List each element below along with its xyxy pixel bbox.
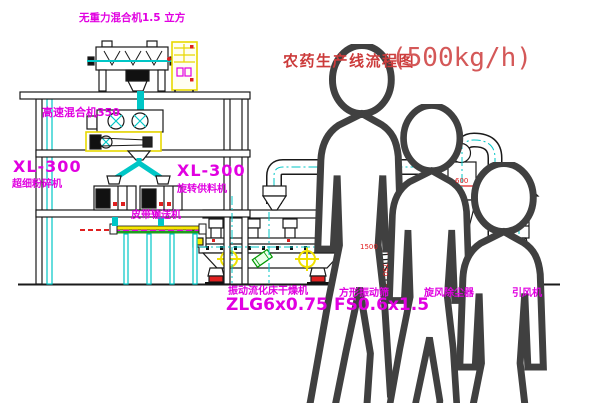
label-pulverizer-left-model: XL-300 xyxy=(13,159,82,175)
pulverizer-left-drop-pipe xyxy=(112,217,118,226)
label-pulverizer-right-model: XL-300 xyxy=(177,163,246,179)
control-cabinet-top xyxy=(172,42,197,92)
dimension-screen-height: 750 xyxy=(381,263,388,276)
person-figure-1 xyxy=(298,46,402,403)
diagram-canvas: 农药生产线流程图 (500kg/h) 无重力混合机1.5 立方 高速混合机350… xyxy=(0,0,600,403)
label-gravity-free-mixer: 无重力混合机1.5 立方 xyxy=(79,13,185,24)
pulverizer-right xyxy=(140,176,182,210)
label-belt-conveyor: 皮带输送机 xyxy=(131,211,181,221)
label-dryer-model: ZLG6x0.75 xyxy=(226,297,328,314)
label-high-speed-mixer: 高速混合机350 xyxy=(42,107,120,118)
label-screen-model: FS0.6x1.5 xyxy=(334,297,429,314)
label-cyclone: 旋风除尘器 xyxy=(424,289,474,299)
dimension-cyclone-diameter: 600 xyxy=(455,178,468,185)
label-induced-draft-fan: 引风机 xyxy=(512,289,542,299)
diagram-title-capacity: (500kg/h) xyxy=(391,45,532,71)
label-pulverizer-right-name: 旋转供料机 xyxy=(177,185,227,195)
belt-conveyor xyxy=(80,224,206,284)
dimension-screen-length: 1500 xyxy=(360,244,378,251)
pulverizer-left xyxy=(94,176,136,210)
gravity-free-mixer xyxy=(87,41,177,91)
conveyor-legs xyxy=(124,234,197,284)
label-pulverizer-left-name: 超细粉碎机 xyxy=(12,180,62,190)
people xyxy=(298,46,600,403)
